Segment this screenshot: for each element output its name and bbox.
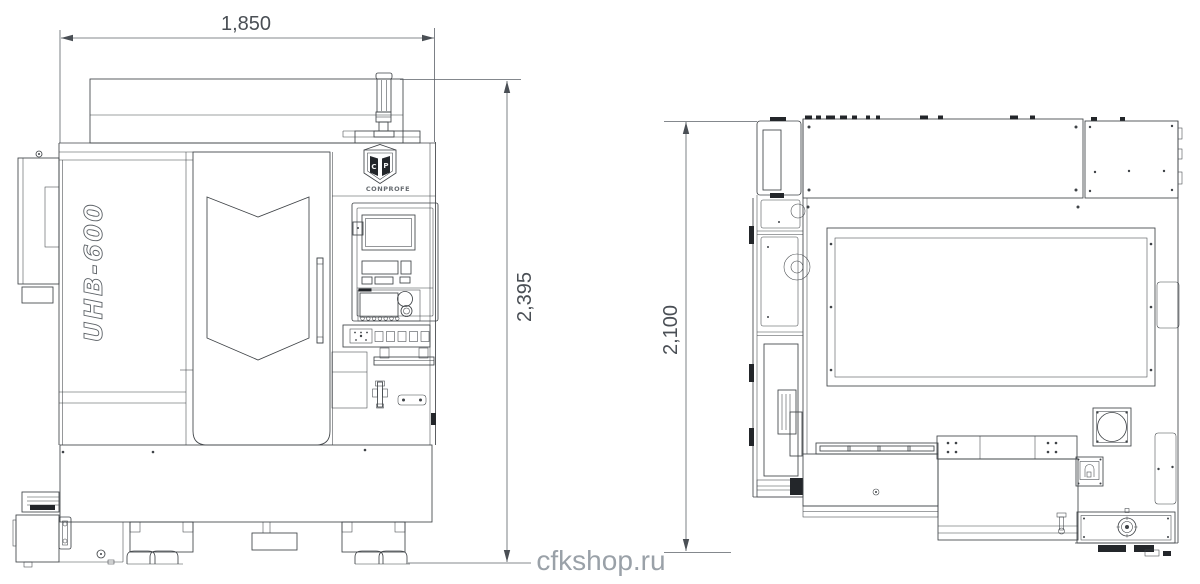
door-handle (317, 258, 323, 343)
logo-letter-p: P (383, 162, 388, 170)
cooling-fan (1093, 408, 1131, 446)
interlock-handle (1076, 457, 1103, 486)
spindle-knob (401, 306, 412, 317)
rear-access-panel (827, 228, 1155, 386)
perforated-panel (764, 344, 802, 476)
conprofe-logo-icon: C P (364, 145, 396, 184)
watermark: cfkshop.ru (536, 545, 665, 576)
left-side-unit (18, 151, 59, 303)
brand-name: CONPROFE (366, 185, 410, 193)
linear-rail (816, 443, 938, 454)
cnc-control-panel (343, 203, 438, 347)
lower-cabinet-left (803, 454, 938, 517)
dim-height-side-value: 2,100 (660, 305, 682, 355)
lower-cabinet-center (938, 459, 1078, 540)
technical-drawing-page: UHB-600 C P (0, 0, 1200, 584)
side-bottom-feet (1075, 543, 1178, 556)
leveling-feet (127, 522, 410, 564)
machine-roof (90, 79, 403, 143)
side-view (749, 116, 1182, 557)
machine-door (193, 152, 333, 445)
cnc-keypad (362, 261, 411, 284)
dimension-width-front: 1,850 (60, 13, 435, 143)
terminal-box (937, 436, 1077, 459)
logo-letter-c: C (371, 163, 376, 171)
signal-tower-icon (343, 73, 420, 143)
model-label: UHB-600 (79, 202, 108, 342)
chip-conveyor-left (13, 492, 71, 567)
front-view: UHB-600 C P (13, 73, 438, 567)
side-left-column (749, 195, 810, 497)
cnc-screen (353, 215, 415, 250)
coolant-valve-box (1077, 509, 1175, 544)
dimension-height-side: 2,100 (660, 122, 757, 553)
machine-base (59, 445, 432, 564)
side-right-panels (1155, 282, 1179, 504)
dim-width-value: 1,850 (221, 13, 271, 35)
keyboard-tray (343, 325, 430, 347)
roof-mounts (805, 116, 1125, 122)
feed-override-knob (398, 292, 413, 307)
door-window (207, 197, 309, 360)
door-lock-lever (373, 381, 388, 408)
machine-drawing-svg: UHB-600 C P (0, 0, 1200, 584)
drain-pipe (1057, 513, 1066, 534)
side-top-cabinets (757, 116, 1182, 209)
dim-height-front-value: 2,395 (514, 272, 536, 322)
side-body-outline (803, 119, 1178, 543)
tower-lower-details (332, 348, 434, 408)
